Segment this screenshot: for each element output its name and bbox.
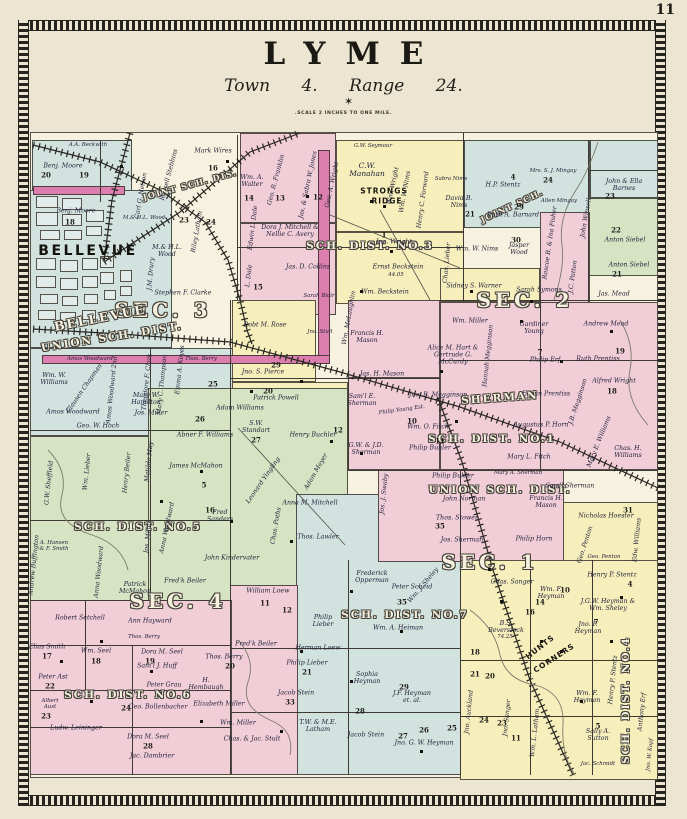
city-block [62, 296, 78, 306]
owner-name: Jos. Sherman [441, 538, 483, 545]
owner-name: Thos. Lawler [297, 535, 338, 542]
parcel-number: 29 [514, 203, 524, 212]
parcel-number: 22 [611, 226, 621, 235]
owner-name: Francis H. Mason [523, 496, 569, 510]
city-block [64, 230, 82, 240]
owner-name: B.S. Beverstock [485, 621, 527, 635]
owner-name: David B. Nims [442, 196, 476, 210]
owner-name: Sally A. Sutton [581, 729, 615, 743]
owner-name: Nicholas Hoester [578, 514, 633, 521]
parcel-number: 16 [205, 506, 215, 515]
owner-name: Ernst Beckstein [373, 265, 424, 272]
owner-name: 44.05 [388, 273, 403, 279]
school-district-label: SCH. DIST. NO.4 [621, 636, 633, 764]
building-marker [610, 330, 613, 333]
parcel-number: 11 [435, 437, 445, 446]
owner-name: Mary L. Fitch [507, 455, 550, 462]
building-marker [226, 160, 229, 163]
parcel-number: 21 [470, 670, 480, 679]
owner-name: Jas. Mead [598, 292, 629, 299]
parcel-number: 29 [271, 361, 281, 370]
parcel-number: 26 [419, 726, 429, 735]
owner-name: Benj. Moore [43, 164, 82, 171]
owner-name: Mark Wires [194, 149, 231, 156]
owner-name: William Loew [246, 589, 289, 596]
owner-name: Jno. Stult [307, 330, 332, 336]
owner-name: Jasper Wood [504, 243, 534, 257]
owner-name: Amos Woodward [67, 357, 113, 363]
owner-name: Benj. Moore [56, 209, 95, 216]
owner-name: J.G.W. Heyman & Wm. Sheley [578, 599, 638, 613]
owner-name: Jacob Stein [348, 733, 384, 740]
owner-name: Jac. Dambrier [130, 754, 174, 761]
building-marker [280, 730, 283, 733]
owner-name: Dora M. Seel [141, 650, 183, 657]
building-marker [150, 670, 153, 673]
owner-name: G.W. Seymour [354, 144, 392, 150]
parcel-number: 7 [594, 618, 599, 627]
building-marker [530, 300, 533, 303]
owner-name: Wm. Seel [81, 649, 111, 656]
owner-name: Ludw. Leininger [50, 726, 102, 733]
boundary-line [463, 133, 464, 302]
parcel-number: 11 [511, 734, 521, 743]
city-block [36, 258, 56, 270]
owner-name: S.W. Standart [238, 421, 274, 435]
owner-name: H.P. Stentz [486, 183, 521, 190]
owner-name: Amos Woodward [46, 410, 99, 417]
parcel-number: 19 [615, 347, 625, 356]
owner-name: Abner F. Williams [177, 433, 233, 440]
owner-name: Wm. Miller [452, 319, 488, 326]
owner-name: Gardiner Young [514, 322, 554, 336]
parcel-number: 14 [535, 598, 545, 607]
owner-name: C.W. Manahan [345, 162, 389, 179]
owner-name: Robt M. Rose [243, 323, 286, 330]
owner-name: Jac. Schmidt [581, 762, 615, 768]
city-block [40, 294, 58, 304]
boundary-line [237, 135, 238, 300]
city-block [36, 276, 56, 288]
owner-name: J.F. Heyman et. al. [391, 691, 433, 705]
building-marker [250, 390, 253, 393]
owner-name: Ann Hayward [128, 619, 172, 626]
owner-name: Sam'l Sherman [546, 484, 595, 491]
owner-name: Alice M. Hart & Gertrude G. McCurdy [427, 346, 479, 367]
owner-name: Geo. Penton [587, 555, 620, 561]
building-marker [455, 420, 458, 423]
parcel-number: 23 [41, 712, 51, 721]
parcel-number: 12 [282, 606, 292, 615]
owner-name: Allen Mingay [541, 199, 577, 205]
owner-name: Stephen F. Clarke [155, 291, 212, 298]
owner-name: Fred'k Beiler [164, 579, 206, 586]
city-block [86, 226, 102, 236]
building-marker [90, 700, 93, 703]
parcel-number: 4 [628, 580, 633, 589]
building-marker [420, 750, 423, 753]
owner-name: Jno. G. W. Heyman [394, 741, 453, 748]
building-marker [540, 640, 543, 643]
owner-name: Henry P. Stentz [587, 573, 636, 580]
boundary-line [100, 140, 101, 202]
owner-name: Sam'l J. Huff [137, 664, 177, 671]
section-label: SEC. 2 [476, 289, 573, 311]
parcel-number: 18 [65, 218, 75, 227]
parcel-number: 13 [275, 194, 285, 203]
parcel-number: 20 [225, 662, 235, 671]
parcel-number: 5 [202, 481, 207, 490]
city-block [82, 258, 98, 270]
boundary-line [230, 712, 460, 713]
owner-name: Jacob Stein [278, 691, 314, 698]
owner-name: James McMahon [169, 464, 222, 471]
parcel-region [563, 502, 658, 562]
owner-name: Philip Lieber [286, 661, 327, 668]
owner-name: Philip Erf [530, 358, 560, 365]
owner-name: Jno. P. Heyman [569, 622, 607, 636]
parcel-number: 23 [497, 719, 507, 728]
building-marker [350, 590, 353, 593]
owner-name: 74.25 [497, 635, 512, 641]
owner-name: Wm. F. Heyman [568, 691, 606, 705]
parcel-number: 24 [206, 218, 216, 227]
building-marker [580, 700, 583, 703]
owner-name: Wm. A. Heiman [373, 626, 423, 633]
owner-name: M.& H.L. Wood [123, 216, 165, 222]
city-block [36, 196, 58, 208]
building-marker [160, 500, 163, 503]
building-marker [610, 640, 613, 643]
owner-name: A.A. Beckwith [69, 143, 107, 149]
parcel-number: 31 [623, 506, 633, 515]
owner-name: Mrs. S. J. Mingay [530, 169, 577, 175]
owner-name: Chas. Sanger [491, 580, 534, 587]
owner-name: Anna M. Mitchell [282, 501, 337, 508]
parcel-number: 24 [479, 716, 489, 725]
school-district-label: SCH. DIST. NO.3 [306, 241, 434, 253]
plat-map: A.A. BeckwithBenj. Moore2019Mark Wires16… [0, 0, 687, 819]
owner-name: Henry Buchler [290, 433, 337, 440]
owner-name: H. Hembaugh [187, 678, 225, 692]
parcel-number: 19 [79, 171, 89, 180]
parcel-number: 5 [596, 722, 601, 731]
building-marker [360, 290, 363, 293]
owner-name: Alfred Wright [592, 379, 636, 386]
boundary-line [230, 378, 440, 379]
owner-name: Ruth Prentiss [576, 357, 619, 364]
owner-name: Chas. H. Williams [607, 446, 649, 460]
owner-name: Jno. S. Pierce [242, 370, 285, 377]
owner-name: Mary A. Sherman [494, 471, 542, 477]
parcel-number: 35 [397, 598, 407, 607]
parcel-number: 14 [244, 194, 254, 203]
owner-name: Sophia Heyman [348, 672, 386, 686]
building-marker [560, 650, 563, 653]
building-marker [488, 568, 491, 571]
owner-name: A. Hansen & F. Smith [38, 541, 70, 553]
owner-name: Geo. Bollenbacher [129, 705, 188, 712]
building-marker [390, 250, 393, 253]
parcel-number: 18 [91, 657, 101, 666]
parcel-number: 10 [560, 586, 570, 595]
parcel-number: 27 [251, 436, 261, 445]
parcel-number: 27 [398, 732, 408, 741]
owner-name: Wm. Miller [220, 721, 256, 728]
parcel-number: 23 [605, 192, 615, 201]
parcel-number: 18 [607, 387, 617, 396]
parcel-number: 11 [260, 599, 270, 608]
parcel-number: 21 [302, 668, 312, 677]
parcel-number: 22 [45, 682, 55, 691]
building-marker [350, 680, 353, 683]
city-block [40, 230, 60, 240]
owner-name: Sam'l E. Sherman [343, 394, 381, 408]
owner-name: Wm. Beckstein [361, 290, 409, 297]
owner-name: Philip Lieber [307, 615, 339, 629]
city-block [120, 270, 132, 282]
building-marker [500, 600, 503, 603]
building-marker [440, 370, 443, 373]
parcel-number: 20 [41, 171, 51, 180]
city-label: BELLEVUE [38, 243, 137, 259]
owner-name: Robert Setchell [55, 616, 105, 623]
boundary-line [85, 600, 86, 690]
owner-name: Ruth A. Barnard [487, 213, 539, 220]
parcel-number: 10 [407, 417, 417, 426]
owner-name: G.W. & J.D. Sherman [341, 443, 391, 457]
owner-name: Jas. D. Collins [286, 265, 330, 272]
parcel-number: 16 [525, 608, 535, 617]
owner-name: Jas. H. Mason [360, 372, 404, 379]
boundary-line [348, 560, 349, 775]
building-marker [330, 440, 333, 443]
parcel-number: 23 [179, 216, 189, 225]
building-marker [300, 650, 303, 653]
owner-name: Andrew Mead [584, 322, 629, 329]
city-block [36, 212, 58, 226]
owner-name: Dora J. Mitchell & Nellie C. Avery [261, 225, 319, 239]
city-block [82, 276, 98, 288]
parcel-number: 4 [511, 173, 516, 182]
city-block [120, 286, 132, 296]
parcel-number: 20 [485, 672, 495, 681]
owner-name: Wm. A. Walter [237, 175, 267, 189]
building-marker [360, 452, 363, 455]
building-marker [400, 630, 403, 633]
owner-name: Thos. Berry [185, 357, 217, 363]
owner-name: Philip Horn [516, 537, 553, 544]
building-marker [230, 520, 233, 523]
owner-name: Philip Buhler [432, 474, 474, 481]
owner-name: Peter Ast [38, 675, 67, 682]
building-marker [60, 660, 63, 663]
owner-name: Fred'k Beiler [235, 642, 277, 649]
owner-name: Philip Buhler [409, 446, 451, 453]
owner-name: T.W. & M.E. Latham [293, 720, 343, 734]
building-marker [120, 165, 123, 168]
school-district-label: SCH. DIST. NO.6 [64, 690, 192, 702]
parcel-number: 7 [538, 348, 543, 357]
owner-name: Augustus P. Horn [513, 423, 568, 430]
parcel-number: 17 [42, 652, 52, 661]
parcel-number: 12 [313, 193, 323, 202]
building-marker [290, 540, 293, 543]
city-block [84, 294, 98, 304]
owner-name: Patrick Powell [253, 396, 299, 403]
owner-name: Chas. & Jac. Stult [224, 737, 281, 744]
parcel-number: 26 [195, 415, 205, 424]
owner-name: Adam Williams [216, 406, 264, 413]
parcel-number: 30 [511, 236, 521, 245]
school-district-label: SCH. DIST. NO.5 [74, 522, 202, 534]
corporation-strip [33, 186, 125, 195]
owner-name: Sabra Nims [435, 177, 467, 183]
parcel-number: 28 [143, 742, 153, 751]
owner-name: Wm. W. Nims [456, 247, 499, 254]
parcel-number: 25 [447, 724, 457, 733]
building-marker [560, 360, 563, 363]
owner-name: Elias Smith [29, 645, 66, 652]
owner-name: Albert Aust [37, 699, 63, 711]
boundary-line [590, 170, 658, 171]
building-marker [200, 470, 203, 473]
owner-name: Francis H. Mason [345, 331, 389, 345]
city-block [100, 272, 114, 284]
owner-name: Geo. W. Hoch [77, 424, 120, 431]
owner-name: Elizabeth Miller [193, 702, 244, 709]
owner-name: Jno. Wright [376, 240, 412, 247]
parcel-number: 12 [333, 426, 343, 435]
owner-name: Thos. Berry [205, 655, 242, 662]
building-marker [470, 290, 473, 293]
parcel-number: 15 [253, 283, 263, 292]
owner-name: Wm. W. Williams [37, 373, 71, 387]
building-marker [200, 720, 203, 723]
building-marker [100, 640, 103, 643]
owner-name: Thos. Berry [128, 635, 160, 641]
parcel-number: 21 [612, 270, 622, 279]
parcel-number: 24 [543, 176, 553, 185]
parcel-number: 18 [470, 648, 480, 657]
school-district-label: SCH. DIST. NO.7 [341, 610, 469, 622]
section-label: SEC. 4 [129, 590, 226, 612]
city-block [60, 260, 78, 272]
owner-name: Jno. B. Megginson [409, 393, 467, 400]
city-block [60, 278, 78, 290]
building-marker [300, 380, 303, 383]
parcel-number: 25 [208, 380, 218, 389]
building-marker [306, 195, 309, 198]
building-marker [383, 205, 386, 208]
owner-name: John Kindervater [205, 556, 260, 563]
owner-name: John Norman [443, 497, 486, 504]
parcel-number: 35 [435, 522, 445, 531]
owner-name: Dora M. Seel [127, 735, 169, 742]
atlas-page: { "page": {"number": "11", "title": "LYM… [0, 0, 687, 819]
building-marker [520, 320, 523, 323]
building-marker [370, 200, 373, 203]
parcel-number: 28 [355, 707, 365, 716]
owner-name: Anton Siebel [609, 263, 650, 270]
building-marker [620, 596, 623, 599]
parcel-number: 20 [263, 387, 273, 396]
parcel-number: 33 [285, 698, 295, 707]
owner-name: Anton Siebel [605, 238, 646, 245]
owner-name: Sarah Blair [303, 294, 334, 300]
parcel-number: 21 [465, 210, 475, 219]
owner-name: Wm. O. Fitch [407, 425, 449, 432]
